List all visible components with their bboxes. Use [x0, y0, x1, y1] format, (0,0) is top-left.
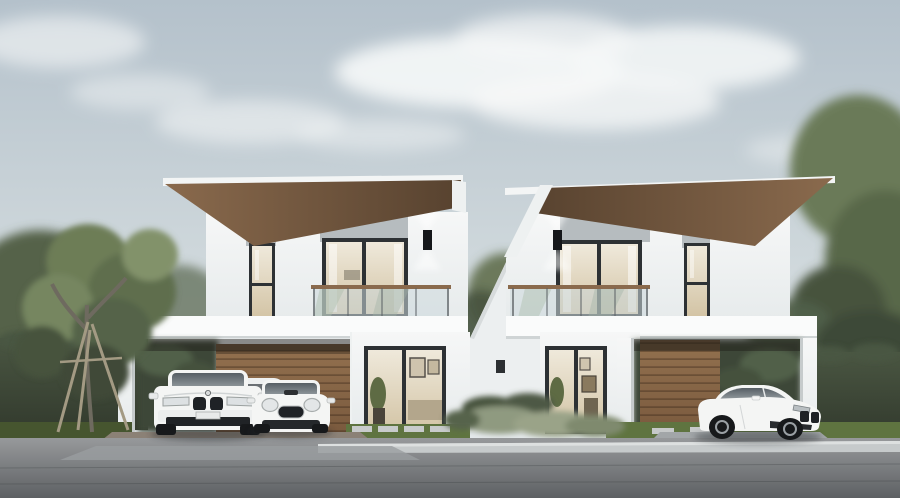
mini-headlight-right	[304, 399, 320, 412]
middle-vent	[496, 360, 505, 373]
coupe-wheel-front	[777, 418, 803, 440]
mini-wheel-right	[312, 424, 328, 433]
suv-plate	[196, 412, 220, 419]
coupe-wheel-rear	[709, 415, 735, 439]
right-narrow-window	[684, 243, 710, 319]
hedge-right	[810, 343, 900, 434]
suv-wheel-left	[156, 424, 176, 435]
mini-wheel-left	[254, 424, 270, 433]
left-balcony-railing	[311, 285, 451, 318]
interior-sofa	[408, 400, 442, 420]
left-narrow-window	[249, 243, 275, 321]
mini-hood-scoop	[284, 390, 298, 395]
architectural-render: Photorealistic exterior rendering of two…	[0, 0, 900, 498]
suv-kidney-grille	[193, 397, 206, 411]
right-balcony-railing	[508, 285, 650, 318]
mini-headlight-left	[262, 399, 278, 412]
mini-grille	[278, 406, 304, 418]
suv-roundel	[205, 390, 210, 395]
left-entrance-door	[364, 346, 446, 436]
interior-shelves	[582, 376, 596, 392]
coupe-kidney-grille	[800, 411, 809, 422]
interior-plant	[370, 377, 386, 411]
suv-headlight-left	[163, 397, 189, 406]
